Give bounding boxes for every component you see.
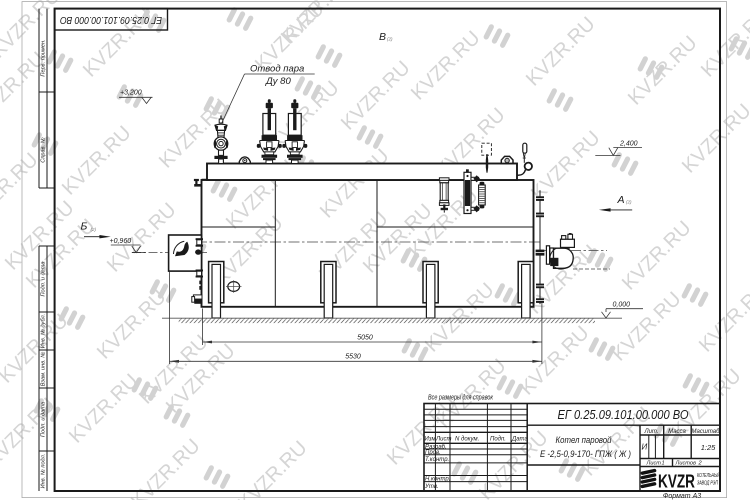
svg-text:Дата: Дата [511, 437, 528, 443]
svg-text:Котел паровой: Котел паровой [556, 435, 612, 445]
svg-text:Инв. № подл.: Инв. № подл. [41, 454, 47, 489]
svg-text:5530: 5530 [345, 354, 361, 361]
svg-text:Ду 80: Ду 80 [265, 76, 291, 87]
svg-text:Отвод пара: Отвод пара [250, 64, 304, 75]
svg-text:Е -2,5-0,9-170- ГПЖ ( Ж ): Е -2,5-0,9-170- ГПЖ ( Ж ) [540, 449, 631, 459]
svg-text:Лист: Лист [435, 437, 451, 443]
svg-text:Все размеры для справок: Все размеры для справок [428, 394, 494, 402]
svg-text:КОТЕЛЬНЫЙ: КОТЕЛЬНЫЙ [697, 471, 720, 479]
svg-text:Пров.: Пров. [425, 450, 441, 456]
svg-text:Утв.: Утв. [424, 484, 439, 490]
svg-text:Лит.: Лит. [643, 429, 658, 435]
svg-text:(2): (2) [387, 37, 393, 42]
svg-text:KVZR: KVZR [658, 471, 695, 492]
svg-text:5050: 5050 [357, 334, 373, 341]
svg-text:2: 2 [698, 460, 703, 466]
svg-text:Т.контр.: Т.контр. [425, 457, 449, 463]
svg-text:Н.контр.: Н.контр. [425, 477, 450, 483]
svg-text:1:25: 1:25 [701, 443, 716, 452]
svg-text:В: В [379, 31, 386, 43]
svg-text:И: И [642, 442, 648, 451]
svg-text:(2): (2) [91, 227, 97, 232]
svg-text:(2): (2) [626, 200, 632, 205]
svg-text:Перв. примен.: Перв. примен. [41, 39, 47, 76]
svg-text:Подп. и дата: Подп. и дата [41, 261, 47, 296]
svg-text:Листов: Листов [675, 460, 696, 466]
svg-text:Инв. № дубл.: Инв. № дубл. [41, 314, 47, 348]
svg-text:N докум.: N докум. [455, 437, 479, 443]
svg-text:0,000: 0,000 [613, 302, 631, 309]
svg-text:Взам. инв. №: Взам. инв. № [41, 352, 47, 387]
svg-text:Подп.: Подп. [490, 437, 506, 443]
svg-text:+3,200: +3,200 [120, 90, 142, 97]
svg-text:Изм: Изм [425, 437, 436, 443]
svg-text:1: 1 [662, 460, 665, 466]
svg-text:Подп. и дата: Подп. и дата [41, 402, 47, 437]
svg-text:Масштаб: Масштаб [691, 429, 720, 435]
svg-text:Справ. №: Справ. № [41, 137, 47, 162]
svg-text:Формат А3: Формат А3 [663, 493, 701, 500]
svg-text:Б: Б [81, 221, 88, 233]
svg-text:2,400: 2,400 [619, 141, 638, 148]
svg-text:Лист: Лист [646, 460, 662, 466]
svg-text:ЗАВОД РЭП: ЗАВОД РЭП [697, 481, 718, 487]
svg-text:+0,960: +0,960 [110, 238, 132, 245]
svg-text:ЕГ 0.25.09.101.00.000 ВО: ЕГ 0.25.09.101.00.000 ВО [60, 14, 162, 26]
svg-text:ЕГ 0.25.09.101.00.000 ВО: ЕГ 0.25.09.101.00.000 ВО [558, 407, 689, 422]
svg-text:А: А [617, 194, 625, 206]
svg-text:Масса: Масса [668, 429, 686, 435]
